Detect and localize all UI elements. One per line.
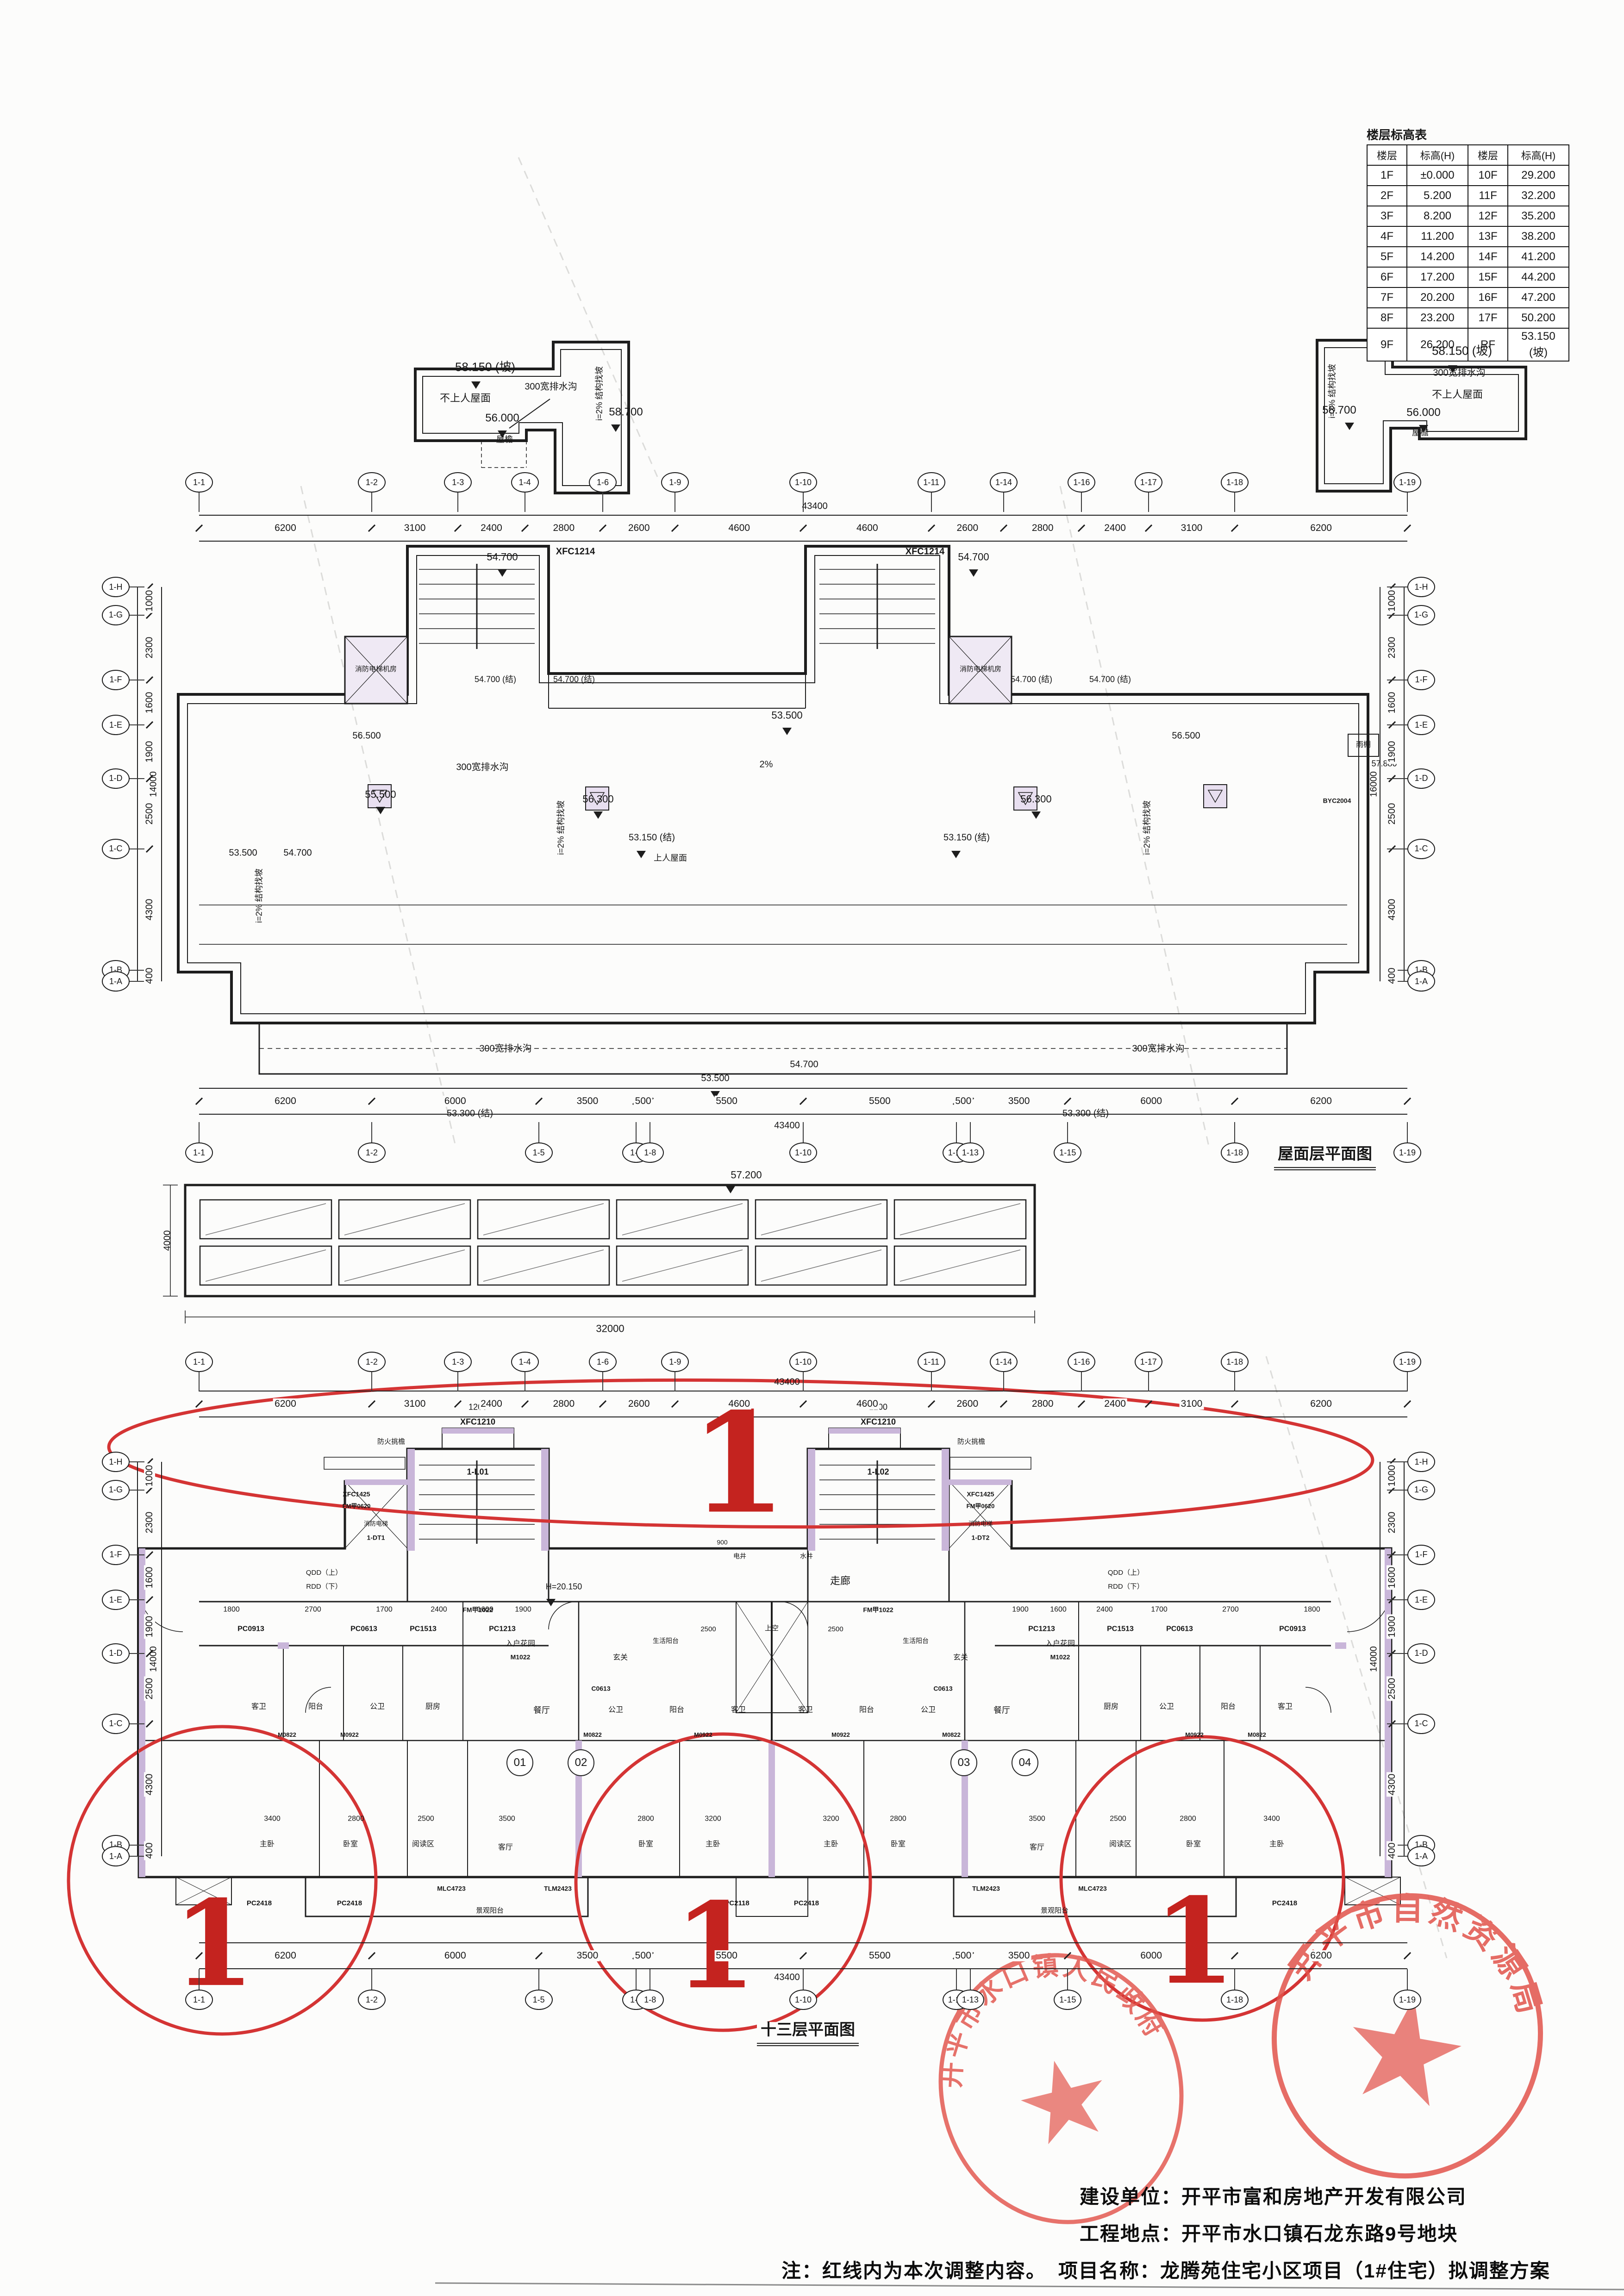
elevation-cell: 14.200 — [1407, 247, 1468, 267]
elevation-marker-icon — [611, 424, 620, 432]
grid-bubble-label: 1-17 — [1140, 478, 1157, 487]
unit-number: 01 — [514, 1756, 526, 1769]
grid-bubble-label: 1-5 — [533, 1148, 545, 1158]
skylight-strip — [163, 1185, 1035, 1323]
unit-number: 04 — [1019, 1756, 1031, 1769]
dim-tick — [146, 1596, 153, 1603]
dim-label: 2600 — [955, 1398, 980, 1410]
plan-label: 上人屋面 — [654, 854, 687, 863]
grid-leader — [636, 1969, 637, 1990]
dim-label: 6200 — [273, 1096, 298, 1107]
elevation-cell: 1F — [1367, 165, 1407, 186]
plan-label: 1800 — [223, 1606, 240, 1614]
dim-label: 2500 — [144, 802, 155, 826]
unit-number: 02 — [575, 1756, 587, 1769]
grid-dims-roof-right: 100023001600190025004300400 — [1380, 587, 1405, 981]
grid-bubble-label: 1-E — [1415, 1595, 1428, 1605]
plan-label: QDD（上） — [1108, 1569, 1144, 1577]
roof-plan — [178, 546, 1379, 1074]
dim-tick — [1231, 1098, 1238, 1105]
elevation-cell: 53.150 (坡) — [1508, 328, 1569, 361]
grid-leader — [602, 1370, 603, 1391]
grid-bubble-label: 1-D — [109, 774, 122, 783]
elevation-cell: 15F — [1468, 267, 1508, 287]
plan-label: 公卫 — [921, 1707, 936, 1715]
elevation-marker-icon — [782, 728, 792, 735]
plan-label: 阅读区 — [412, 1841, 434, 1849]
dim-label: 500 — [634, 1950, 653, 1961]
grid-bubble: 1-G — [102, 1480, 130, 1500]
grid-leader — [1387, 778, 1408, 779]
grid-bubble: 1-A — [1407, 971, 1435, 992]
plan-label: PC1213 — [489, 1626, 516, 1634]
grid-bubble-label: 1-15 — [1059, 1995, 1076, 2005]
plan-label: 1-L01 — [467, 1468, 488, 1477]
plan-label: 屋檐 — [496, 436, 513, 444]
plan-label: 14000 — [149, 1646, 159, 1672]
elevation-row: 6F17.20015F44.200 — [1367, 267, 1569, 287]
plan-label: 14000 — [149, 771, 159, 797]
grid-leader — [1387, 849, 1408, 849]
plan-label: 主卧 — [824, 1841, 838, 1849]
plan-label: 主卧 — [706, 1841, 720, 1849]
grid-bubble: 1-C — [102, 1714, 130, 1734]
grid-bubble: 1-10 — [789, 472, 817, 493]
fold-lines — [301, 157, 1447, 1958]
dim-label: 2300 — [144, 635, 155, 660]
plan-label: 1700 — [1151, 1606, 1168, 1614]
elevation-cell: 6F — [1367, 267, 1407, 287]
plan-label: 1-DT2 — [972, 1535, 990, 1541]
grid-leader — [371, 1969, 372, 1990]
grid-bubble: 1-16 — [1068, 472, 1095, 493]
plan-label: 1800 — [1304, 1606, 1320, 1614]
grid-bubble-label: 1-C — [1414, 1719, 1428, 1728]
grid-bubble-label: 1-C — [1414, 844, 1428, 854]
plan-label: 电井 — [733, 1553, 746, 1560]
dim-label: 5500 — [868, 1096, 892, 1107]
elevation-cell: 2F — [1367, 186, 1407, 206]
grid-bubble-label: 1-G — [1414, 610, 1428, 620]
elevation-cell: 8.200 — [1407, 206, 1468, 226]
plan-label: M0822 — [1248, 1732, 1266, 1738]
dim-tick — [1404, 524, 1411, 532]
plan-label: 2800 — [348, 1816, 364, 1823]
plan-label: M1022 — [1050, 1654, 1070, 1661]
elevation-cell: 4F — [1367, 226, 1407, 247]
grid-bubble-label: 1-H — [109, 1457, 122, 1467]
dim-tick — [1231, 524, 1238, 532]
elevation-cell: 12F — [1468, 206, 1508, 226]
grid-bubble-label: 1-1 — [193, 1148, 205, 1158]
dim-label: 2500 — [1387, 1677, 1398, 1701]
grid-bubble-label: 1-19 — [1399, 1148, 1416, 1158]
grid-bubble-label: 1-11 — [923, 1357, 939, 1367]
dim-label: 6200 — [1309, 523, 1333, 534]
plan-label: 58.150 (坡) — [1432, 344, 1492, 357]
plan-label: 入户花园 — [1045, 1641, 1075, 1648]
grid-bubble: 1-2 — [358, 1142, 386, 1163]
grid-leader — [1234, 1370, 1235, 1391]
elevation-marker-icon — [969, 569, 978, 577]
plan-label: 景观阳台 — [476, 1907, 504, 1915]
elevation-row: 7F20.20016F47.200 — [1367, 287, 1569, 308]
plan-label: 客卫 — [798, 1707, 813, 1715]
dim-tick — [800, 1400, 807, 1408]
dim-label: 500 — [634, 1096, 653, 1107]
grid-bubble-label: 1-18 — [1226, 1148, 1243, 1158]
grid-bubble: 1-5 — [525, 1990, 553, 2010]
grid-leader — [650, 1969, 650, 1990]
elevation-marker-icon — [498, 569, 507, 577]
dim-label: 5500 — [868, 1950, 892, 1961]
dim-label: 2800 — [1031, 523, 1055, 534]
plan-label: 53.150 (结) — [943, 833, 990, 843]
grid-bubble-label: 1-G — [109, 1485, 123, 1495]
elevation-col-header: 标高(H) — [1508, 145, 1569, 165]
elevation-row: 4F11.20013F38.200 — [1367, 226, 1569, 247]
plan-label: 54.700 (结) — [475, 675, 516, 684]
grid-bubble: 1-13 — [956, 1142, 984, 1163]
elevation-cell: 41.200 — [1508, 247, 1569, 267]
plan-label: 玄关 — [613, 1654, 628, 1662]
dim-label: 3100 — [403, 1398, 427, 1410]
plan-label: 56.000 — [1406, 406, 1440, 418]
dim-label: 6200 — [1309, 1096, 1333, 1107]
plan-label: PC0913 — [1279, 1626, 1306, 1634]
grid-bubble: 1-H — [1407, 577, 1435, 597]
grid-bubble: 1-E — [102, 1590, 130, 1610]
plan-label: 1600 — [477, 1606, 493, 1614]
plan-label: 54.700 (结) — [1089, 675, 1131, 684]
grid-bubble-label: 1-6 — [597, 478, 609, 487]
plan-label: M0822 — [583, 1732, 602, 1738]
plan-label: 3400 — [264, 1816, 281, 1823]
dim-label: 500 — [954, 1096, 973, 1107]
grid-leader — [538, 1969, 539, 1990]
grid-bubble: 1-C — [102, 839, 130, 859]
dim-tick — [1078, 524, 1085, 532]
grid-bubble-label: 1-4 — [519, 478, 531, 487]
plan-label: C0613 — [933, 1685, 952, 1692]
plan-label: RDD（下） — [306, 1583, 342, 1591]
plan-label: 53.500 — [229, 849, 257, 858]
plan-label: 2700 — [1222, 1606, 1239, 1614]
plan-label: 43400 — [774, 1973, 800, 1983]
dim-label: 1900 — [144, 740, 155, 764]
elevation-marker-icon — [471, 381, 481, 389]
dim-label: 2600 — [627, 523, 651, 534]
grid-leader — [1387, 1490, 1408, 1491]
grid-bubble: 1-10 — [789, 1142, 817, 1163]
dim-label: 4300 — [144, 1772, 155, 1797]
grid-bubble-label: 1-8 — [644, 1995, 656, 2005]
dim-tick — [927, 1400, 935, 1408]
grid-bubble: 1-F — [102, 1545, 130, 1565]
grid-leader — [1387, 1554, 1408, 1555]
grid-bubble: 1-E — [1407, 715, 1435, 735]
grid-bubble: 1-3 — [444, 472, 472, 493]
plan-label: 屋檐 — [1412, 429, 1429, 437]
grid-bubble: 1-15 — [1054, 1990, 1081, 2010]
grid-bubble-label: 1-F — [110, 1550, 122, 1560]
grid-bubble-label: 1-1 — [193, 1357, 205, 1367]
grid-bubble: 1-16 — [1068, 1352, 1095, 1372]
grid-bubble: 1-8 — [636, 1990, 664, 2010]
dim-label: 2800 — [551, 1398, 576, 1410]
grid-bubble-label: 1-18 — [1226, 1357, 1243, 1367]
dim-tick — [1000, 1400, 1007, 1408]
grid-leader — [1387, 615, 1408, 616]
plan-label: 1700 — [376, 1606, 393, 1614]
dim-label: 2600 — [955, 523, 980, 534]
plan-label: 3200 — [705, 1816, 721, 1823]
grid-bubble-label: 1-D — [1414, 1648, 1428, 1658]
plan-label: PC1213 — [1028, 1626, 1055, 1634]
plan-label: 客卫 — [251, 1703, 266, 1711]
dim-tick — [195, 1400, 203, 1408]
dim-label: 1900 — [144, 1615, 155, 1639]
elevation-cell: 13F — [1468, 226, 1508, 247]
dim-label: 1600 — [144, 1565, 155, 1590]
elevation-cell: 35.200 — [1508, 206, 1569, 226]
grid-dims-roof-bottom: 62006000350050055005500500350060006200 — [199, 1088, 1407, 1115]
dim-tick — [368, 524, 375, 532]
grid-leader — [803, 491, 804, 512]
grid-bubble-label: 1-17 — [1140, 1357, 1157, 1367]
grid-leader — [931, 1370, 932, 1391]
plan-label: 2500 — [700, 1626, 716, 1633]
grid-leader — [1387, 680, 1408, 680]
grid-bubble-label: 1-C — [109, 1719, 122, 1728]
plan-label: M0922 — [694, 1732, 712, 1738]
elevation-marker-icon — [593, 811, 603, 819]
plan-label: 生活阳台 — [653, 1638, 679, 1645]
plan-label: 300宽排水沟 — [1132, 1044, 1184, 1054]
elevation-cell: 14F — [1468, 247, 1508, 267]
grid-bubble: 1-14 — [990, 1352, 1018, 1372]
grid-bubble-label: 1-14 — [995, 1357, 1012, 1367]
dim-tick — [1064, 1952, 1071, 1959]
revision-number: 1 — [1153, 1880, 1235, 2004]
grid-bubble-label: 1-E — [109, 1595, 122, 1605]
grid-dims-13f-right: 100023001600190025004300400 — [1380, 1462, 1405, 1856]
dim-label: 6200 — [273, 1950, 298, 1961]
grid-bubble: 1-19 — [1393, 1142, 1421, 1163]
grid-bubble-label: 1-E — [109, 720, 122, 730]
dim-label: 1900 — [1387, 740, 1398, 764]
stamp-natural-resources: 开平市自然资源局 — [1250, 1869, 1565, 2197]
dim-label: 2800 — [1031, 1398, 1055, 1410]
plan-label: 客厅 — [1030, 1844, 1044, 1852]
grid-bubble: 1-C — [1407, 1714, 1435, 1734]
revision-note: 注：红线内为本次调整内容。 — [781, 2261, 1046, 2281]
plan-label: 1-L02 — [867, 1468, 889, 1477]
plan-label: BYC2004 — [1323, 798, 1351, 805]
grid-bubble-label: 1-19 — [1399, 478, 1416, 487]
dim-label: 400 — [144, 966, 155, 985]
grid-leader — [1407, 1122, 1408, 1143]
project-owner: 建设单位：开平市富和房地产开发有限公司 — [1080, 2187, 1467, 2207]
plan-label: 53.500 — [701, 1074, 729, 1084]
dim-label: 4300 — [144, 897, 155, 922]
dim-tick — [454, 1400, 462, 1408]
plan-label: 阳台 — [1221, 1703, 1236, 1711]
plan-label: M0922 — [1185, 1732, 1204, 1738]
plan-label: H=20.150 — [546, 1583, 582, 1591]
grid-bubble: 1-D — [102, 768, 130, 789]
grid-dims-13f-top: 6200310024002800260046004600260028002400… — [199, 1391, 1407, 1417]
plan-label: 56.500 — [1172, 731, 1200, 741]
dim-tick — [800, 524, 807, 532]
plan-label: 餐厅 — [993, 1706, 1010, 1715]
plan-label: 3200 — [823, 1816, 839, 1823]
project-site: 工程地点：开平市水口镇石龙东路9号地块 — [1080, 2224, 1458, 2244]
dim-label: 3500 — [1007, 1096, 1031, 1107]
dim-tick — [146, 721, 153, 729]
grid-bubble: 1-H — [102, 577, 130, 597]
plan-label: 2500 — [828, 1626, 843, 1633]
grid-bubble-label: 1-2 — [366, 1357, 378, 1367]
dim-label: 2600 — [627, 1398, 651, 1410]
plan-label: 卧室 — [1186, 1841, 1201, 1849]
plan-label: 53.300 (结) — [447, 1109, 493, 1119]
grid-leader — [1067, 1122, 1068, 1143]
plan-label: 2700 — [305, 1606, 321, 1614]
plan-label: 53.150 (结) — [629, 833, 675, 843]
grid-bubble: 1-17 — [1135, 472, 1162, 493]
dim-label: 2400 — [479, 523, 504, 534]
grid-leader — [1148, 491, 1149, 512]
plan-label: M0922 — [831, 1732, 850, 1738]
project-name: 项目名称：龙腾苑住宅小区项目（1#住宅）拟调整方案 — [1058, 2261, 1550, 2281]
grid-leader — [602, 491, 603, 512]
plan-label: XFC1210 — [861, 1418, 896, 1427]
dim-tick — [1404, 1098, 1411, 1105]
grid-bubble-label: 1-G — [109, 610, 123, 620]
grid-bubble: 1-2 — [358, 472, 386, 493]
plan-label: 53.300 (结) — [1062, 1109, 1109, 1119]
plan-label: 走廊 — [830, 1575, 850, 1586]
dim-tick — [195, 1098, 203, 1105]
dim-label: 3500 — [575, 1950, 600, 1961]
plan-label: PC0913 — [237, 1626, 264, 1634]
plan-label: 公卫 — [608, 1707, 623, 1715]
grid-leader — [457, 491, 458, 512]
elevation-cell: 7F — [1367, 287, 1407, 308]
grid-bubble-label: 1-4 — [519, 1357, 531, 1367]
plan-label: 客卫 — [731, 1707, 746, 1715]
grid-leader — [371, 1122, 372, 1143]
plan-label: 阳台 — [308, 1703, 323, 1711]
plan-label: XFC1425 — [967, 1491, 994, 1498]
grid-leader — [1081, 1370, 1082, 1391]
grid-leader — [1003, 491, 1004, 512]
dim-label: 1000 — [1387, 589, 1398, 613]
grid-bubble-label: 1-H — [109, 582, 122, 592]
plan-label: 1900 — [1012, 1606, 1029, 1614]
dim-label: 1900 — [1387, 1615, 1398, 1639]
dim-label: 6000 — [1139, 1950, 1163, 1961]
dim-tick — [927, 524, 935, 532]
elevation-marker-icon — [951, 851, 961, 858]
grid-leader — [675, 491, 675, 512]
unit-number-bubble: 04 — [1012, 1749, 1038, 1776]
grid-bubble-label: 1-3 — [452, 1357, 464, 1367]
grid-leader — [803, 1969, 804, 1990]
plan-label: 57.200 — [731, 1169, 762, 1180]
dim-label: 1000 — [144, 589, 155, 613]
floor13-plan-title: 十三层平面图 — [757, 2022, 859, 2046]
elevation-row: 3F8.20012F35.200 — [1367, 206, 1569, 226]
grid-bubble: 1-E — [1407, 1590, 1435, 1610]
revision-number: 1 — [173, 1882, 255, 2006]
grid-bubble: 1-A — [102, 971, 130, 992]
grid-bubble-label: 1-C — [109, 844, 122, 854]
plan-label: i=2% 结构找坡 — [1143, 800, 1152, 855]
grid-bubble-label: 1-18 — [1226, 478, 1243, 487]
grid-leader — [1387, 586, 1408, 587]
plan-label: 阳台 — [859, 1707, 874, 1715]
plan-label: XFC1214 — [556, 547, 595, 557]
plan-label: 消防电梯机房 — [960, 666, 1001, 673]
plan-label: 300宽排水沟 — [525, 382, 577, 392]
grid-leader — [538, 1122, 539, 1143]
plan-label: PC2418 — [794, 1900, 819, 1907]
grid-bubble: 1-19 — [1393, 1990, 1421, 2010]
elevation-marker-icon — [726, 1186, 735, 1193]
dim-label: 4300 — [1387, 897, 1398, 922]
plan-label: 玄关 — [953, 1654, 968, 1662]
grid-bubble: 1-1 — [185, 1990, 213, 2010]
grid-bubble: 1-13 — [956, 1990, 984, 2010]
dim-tick — [1000, 524, 1007, 532]
plan-label: TLM2423 — [544, 1885, 572, 1892]
dim-tick — [146, 1720, 153, 1728]
plan-label: 2400 — [1096, 1606, 1113, 1614]
elevation-table: 楼层标高(H)楼层标高(H) 1F±0.00010F29.2002F5.2001… — [1367, 144, 1569, 362]
grid-leader — [1387, 1653, 1408, 1654]
plan-label: 2800 — [1180, 1816, 1196, 1823]
elevation-cell: 16F — [1468, 287, 1508, 308]
grid-bubble-label: 1-D — [109, 1648, 122, 1658]
dim-label: 4300 — [1387, 1772, 1398, 1797]
plan-label: XFC1210 — [460, 1418, 495, 1427]
dim-tick — [1078, 1400, 1085, 1408]
grid-bubble-label: 1-9 — [669, 478, 681, 487]
grid-leader — [199, 1370, 200, 1391]
grid-bubble-label: 1-5 — [533, 1995, 545, 2005]
dim-label: 400 — [144, 1841, 155, 1860]
grid-leader — [1081, 491, 1082, 512]
plan-label: 1900 — [515, 1606, 531, 1614]
plan-label: 阳台 — [669, 1707, 684, 1715]
grid-leader — [650, 1122, 650, 1143]
elevation-cell: 29.200 — [1508, 165, 1569, 186]
revision-number: 1 — [690, 1390, 787, 1536]
plan-label: 3500 — [1029, 1816, 1045, 1823]
plan-label: 56.300 — [1020, 793, 1051, 804]
plan-label: 卧室 — [891, 1841, 906, 1849]
grid-leader — [1067, 1969, 1068, 1990]
grid-bubble-label: 1-13 — [962, 1995, 979, 2005]
dim-label: 5500 — [714, 1096, 739, 1107]
dim-label: 3100 — [1180, 523, 1204, 534]
grid-leader — [1407, 491, 1408, 512]
plan-label: 客厅 — [498, 1844, 513, 1852]
plan-label: i=2% 结构找坡 — [557, 800, 566, 855]
grid-bubble: 1-A — [1407, 1846, 1435, 1866]
